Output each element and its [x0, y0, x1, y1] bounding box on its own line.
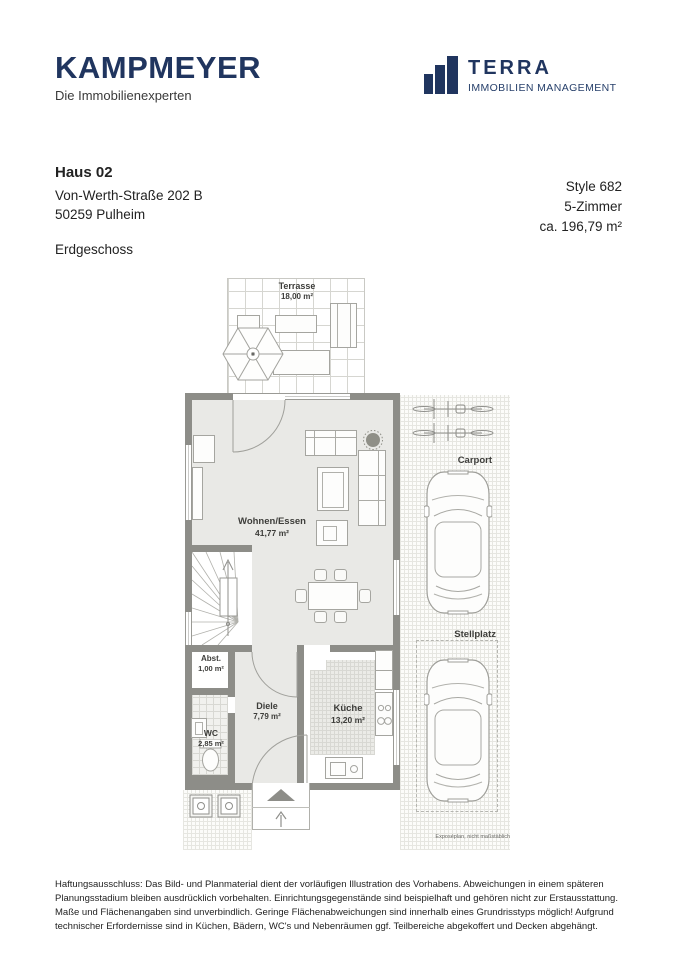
cabinet: [192, 467, 203, 520]
street-line: Von-Werth-Straße 202 B: [55, 186, 203, 205]
terra-tagline: IMMOBILIEN MANAGEMENT: [468, 82, 616, 94]
style-block: Style 682 5-Zimmer ca. 196,79 m²: [539, 177, 622, 237]
kampmeyer-tagline: Die Immobilienexperten: [55, 88, 261, 103]
terrace-lounger: [330, 303, 357, 348]
rooms-line: 5-Zimmer: [539, 197, 622, 217]
window: [185, 445, 192, 520]
stairs-icon: [192, 552, 252, 645]
wc-door-opening: [228, 697, 235, 713]
wall: [185, 645, 252, 652]
room-label-wohnen-essen: Wohnen/Essen41,77 m²: [222, 516, 322, 539]
plan-note: Exposéplan, nicht maßstäblich: [383, 834, 510, 840]
bicycle-icon: [408, 397, 500, 445]
wall: [185, 688, 228, 695]
terra-wordmark: TERRA: [468, 58, 616, 78]
chair: [334, 611, 347, 623]
kitchen-sink-icon: [325, 757, 363, 779]
wall: [297, 645, 304, 790]
plant-icon: [362, 429, 384, 451]
coffee-table: [317, 467, 349, 511]
kampmeyer-logo: KAMPMEYER Die Immobilienexperten: [55, 50, 261, 103]
wall: [393, 393, 400, 560]
city-line: 50259 Pulheim: [55, 205, 203, 224]
room-label-kueche: Küche13,20 m²: [308, 703, 388, 726]
floorplan: Terrasse18,00 m²: [183, 273, 513, 853]
terrace-door-opening: [233, 393, 285, 400]
address-block: Haus 02 Von-Werth-Straße 202 B 50259 Pul…: [55, 163, 203, 259]
parasol-icon: [221, 322, 285, 386]
dining-table: [308, 582, 358, 610]
trash-bin-icon: [189, 794, 213, 818]
room-label-terrasse: Terrasse18,00 m²: [255, 281, 339, 302]
room-label-diele: Diele7,79 m²: [237, 701, 297, 722]
trash-bin-icon: [217, 794, 241, 818]
window: [185, 612, 192, 648]
wall: [185, 393, 192, 445]
window: [285, 393, 350, 400]
floorplan-page: KAMPMEYER Die Immobilienexperten TERRA I…: [0, 0, 673, 960]
room-label-abstellraum: Abst.1,00 m²: [190, 654, 232, 673]
wall: [185, 545, 252, 552]
wall: [310, 783, 400, 790]
wall: [185, 783, 252, 790]
chair: [334, 569, 347, 581]
level-line: Erdgeschoss: [55, 240, 203, 259]
wall: [185, 393, 233, 400]
sofa: [305, 430, 357, 456]
area-line: ca. 196,79 m²: [539, 217, 622, 237]
wall: [185, 775, 235, 783]
threshold-line: [252, 807, 310, 808]
entrance-arrow-icon: [271, 809, 291, 829]
kitchen-counter: [375, 650, 393, 690]
car-icon: [424, 658, 492, 803]
chair: [295, 589, 307, 603]
window: [393, 560, 400, 615]
wall: [393, 615, 400, 690]
chair: [314, 611, 327, 623]
wall: [185, 520, 192, 612]
room-label-wc: WC2,85 m²: [192, 728, 230, 748]
carport-label: Carport: [430, 455, 492, 467]
window: [393, 690, 400, 765]
sofa: [358, 450, 386, 526]
disclaimer-text: Haftungsausschluss: Das Bild- und Planma…: [55, 878, 620, 935]
car-icon: [424, 470, 492, 615]
terra-logo: TERRA IMMOBILIEN MANAGEMENT: [424, 56, 616, 94]
bar-chart-logo-icon: [424, 56, 458, 94]
cabinet: [193, 435, 215, 463]
style-line: Style 682: [539, 177, 622, 197]
house-title: Haus 02: [55, 163, 203, 182]
chair: [314, 569, 327, 581]
entrance-marker: [267, 789, 295, 801]
chair: [359, 589, 371, 603]
kampmeyer-wordmark: KAMPMEYER: [55, 50, 261, 86]
terra-text-block: TERRA IMMOBILIEN MANAGEMENT: [468, 58, 616, 94]
